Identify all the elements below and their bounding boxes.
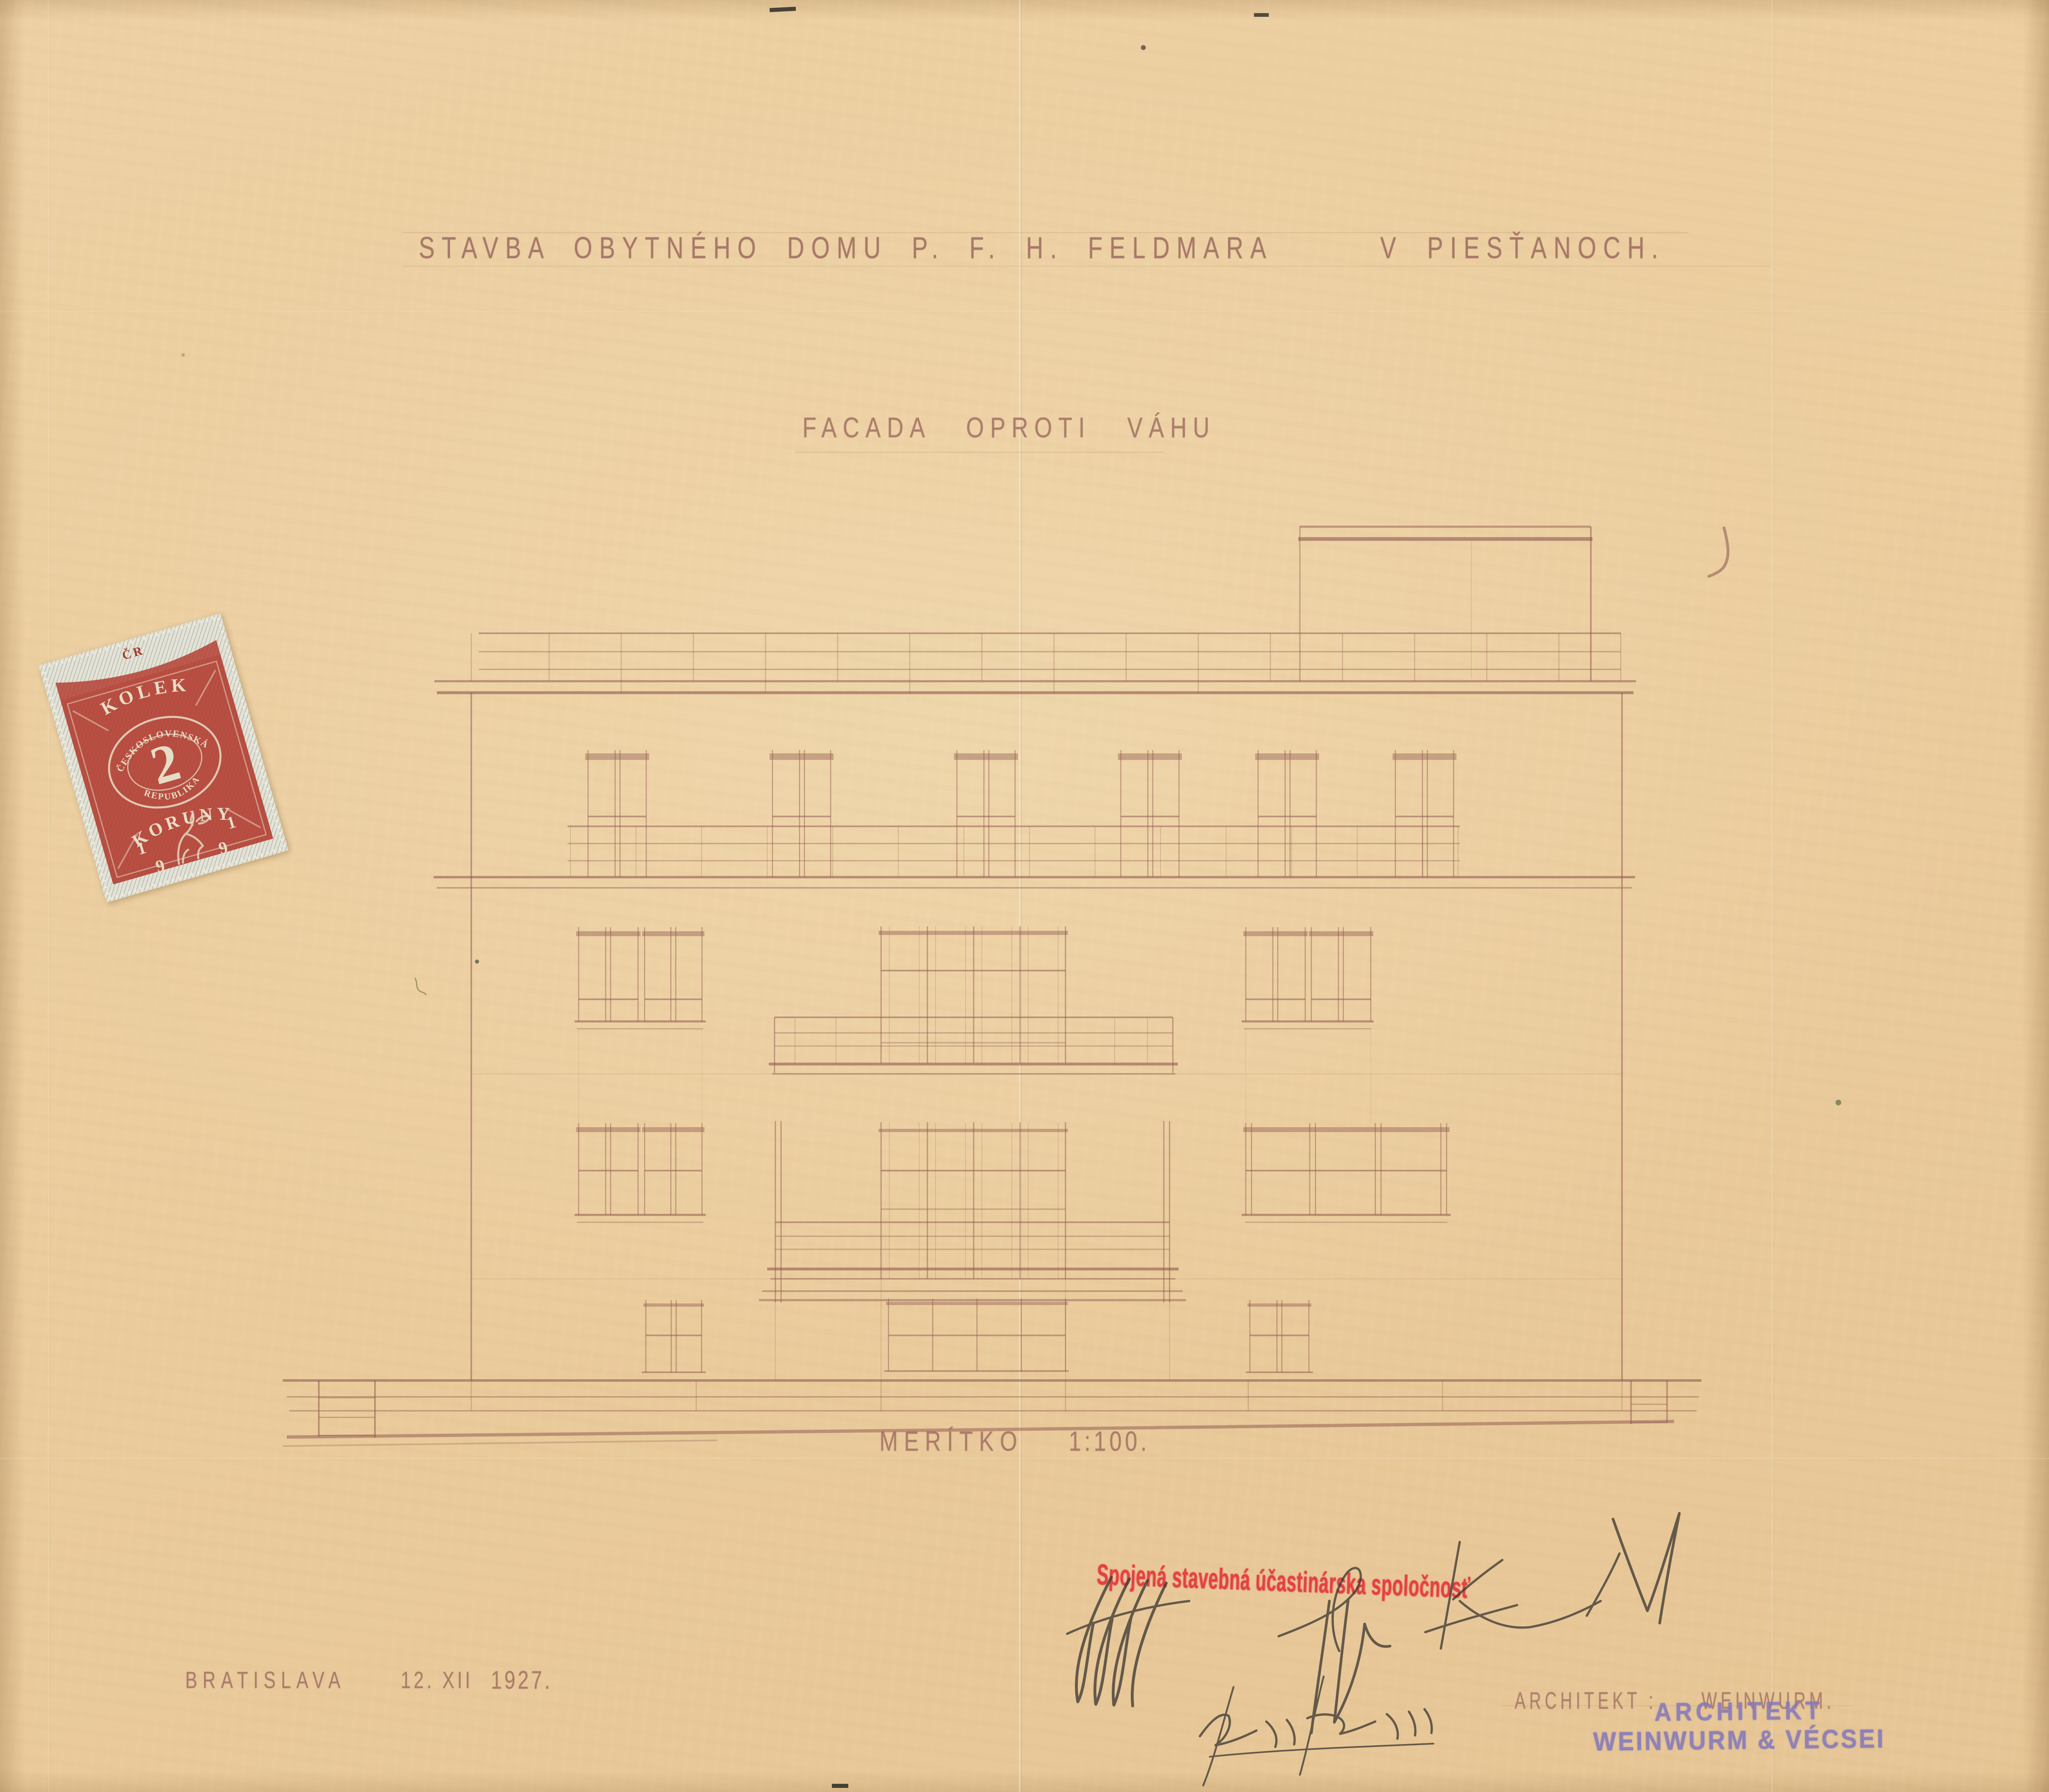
signature-left-scrawl — [1067, 1577, 1189, 1706]
signatures-layer — [0, 0, 2049, 1792]
signature-right-flourish — [1425, 1513, 1679, 1649]
signature-center-paraph — [1279, 1568, 1390, 1733]
drawing-sheet: STAVBA OBYTNÉHO DOMU P. F. H. FELDMARA V… — [0, 0, 2049, 1792]
